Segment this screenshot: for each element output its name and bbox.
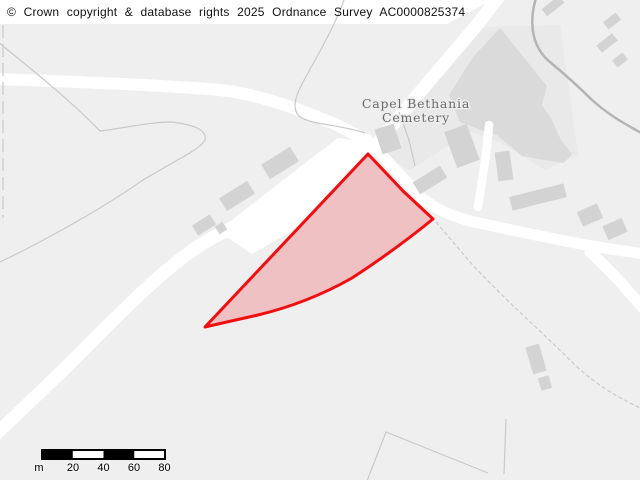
map-canvas[interactable]: Capel Bethania Cemetery m 20 40 60 80 [0, 0, 640, 480]
cemetery-label-line2: Cemetery [382, 110, 450, 125]
scale-bar-tick-80: 80 [158, 462, 170, 474]
scale-bar-tick-40: 40 [97, 462, 109, 474]
cemetery-label-line1: Capel Bethania [362, 96, 470, 111]
copyright-text: © Crown copyright & database rights 2025… [7, 5, 465, 19]
scale-bar-segment-black-1 [42, 450, 73, 459]
map-viewport[interactable]: Capel Bethania Cemetery m 20 40 60 80 © … [0, 0, 640, 480]
scale-bar-unit: m [34, 462, 43, 474]
scale-bar-segment-black-2 [104, 450, 135, 459]
scale-bar-tick-60: 60 [128, 462, 140, 474]
scale-bar-tick-20: 20 [67, 462, 79, 474]
